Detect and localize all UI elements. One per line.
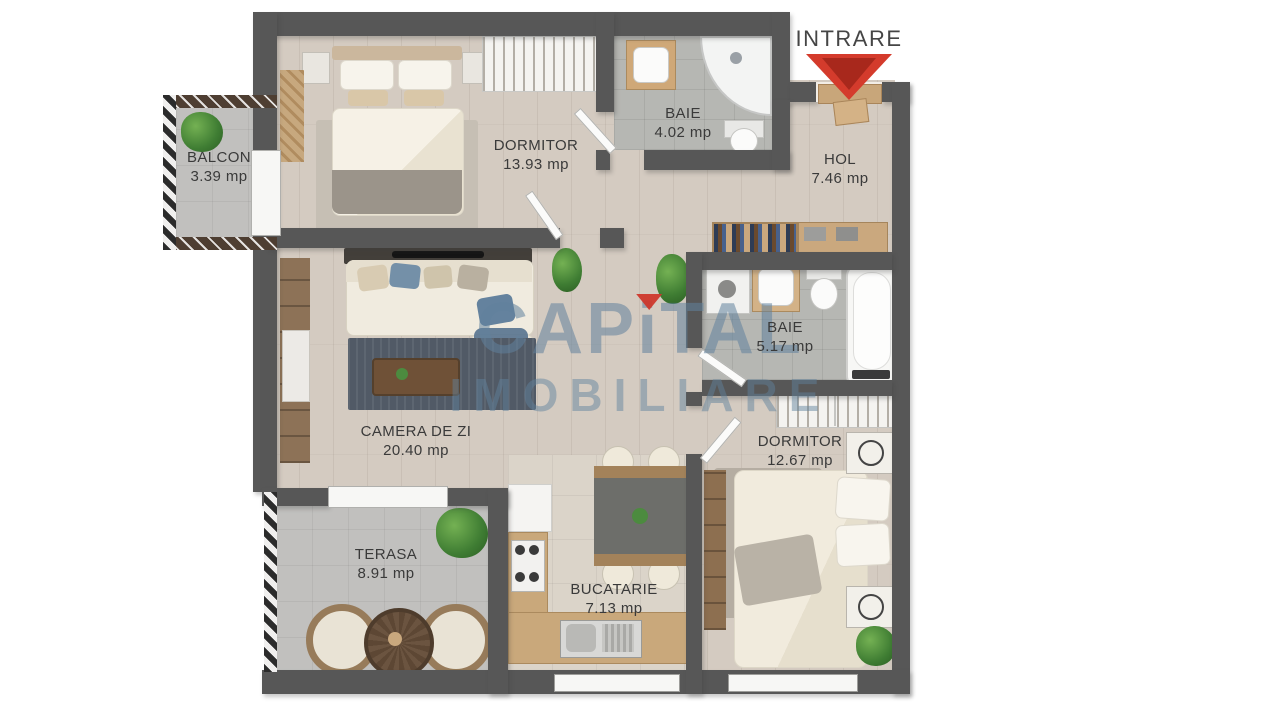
wardrobe <box>482 36 598 92</box>
wall-top <box>268 12 784 36</box>
bed-pillow <box>835 476 892 522</box>
room-name: DORMITOR <box>494 136 579 155</box>
stove-burner <box>515 572 525 582</box>
bed-cushion <box>348 90 388 106</box>
bed-pillow <box>340 60 394 90</box>
coffee-table <box>372 358 460 396</box>
dining-table-trim <box>594 466 688 478</box>
bedroom2-window <box>728 674 858 692</box>
wall-hol-bath2 <box>686 252 892 270</box>
tv <box>392 251 484 258</box>
bed-headboard <box>332 46 462 60</box>
dining-table-trim <box>594 554 688 566</box>
nightstand <box>302 52 330 84</box>
entrance-arrow-shade <box>822 58 876 90</box>
dresser-cabinet <box>704 470 726 630</box>
stove-burner <box>529 572 539 582</box>
bath-mat <box>852 370 890 379</box>
wall-kitchen-bedroom2 <box>686 454 702 694</box>
plant <box>856 626 896 666</box>
toilet-bowl <box>810 278 838 310</box>
room-label-terasa: TERASA 8.91 mp <box>355 545 417 583</box>
wall-bedroom1-bath1 <box>596 12 614 112</box>
bed-pillow <box>835 523 891 568</box>
room-label-hol: HOL 7.46 mp <box>812 150 869 188</box>
watermark-accent-letter: i <box>637 288 660 370</box>
plant <box>436 508 488 558</box>
room-area: 7.46 mp <box>812 169 869 188</box>
wall-terrace-kitchen <box>488 488 508 694</box>
kitchen-window <box>554 674 680 692</box>
room-area: 3.39 mp <box>187 167 251 186</box>
room-area: 5.17 mp <box>757 337 814 356</box>
entrance-label: INTRARE <box>795 26 902 52</box>
stove-burner <box>515 545 525 555</box>
room-area: 7.13 mp <box>570 599 657 618</box>
shower-drain <box>730 52 742 64</box>
room-area: 4.02 mp <box>655 123 712 142</box>
compass-decor <box>858 594 884 620</box>
sofa-pillow <box>423 265 453 289</box>
room-label-dormitor2: DORMITOR 12.67 mp <box>758 432 843 470</box>
outdoor-table-center <box>388 632 402 646</box>
sofa-pillow <box>389 262 421 289</box>
bed-cushion <box>404 90 444 106</box>
watermark-brand-line2: IMOBILIARE <box>450 368 831 422</box>
ladder-rack <box>280 70 304 162</box>
entrance-door-leaf <box>833 98 870 126</box>
stove-burner <box>529 545 539 555</box>
room-name: BUCATARIE <box>570 580 657 599</box>
wall-bath1-bottom <box>644 150 790 170</box>
wall-bedroom1-living-post <box>600 228 624 248</box>
sink-basin <box>566 624 596 652</box>
sofa-pillow <box>356 264 389 292</box>
room-label-dormitor1: DORMITOR 13.93 mp <box>494 136 579 174</box>
sink-basin <box>633 47 669 83</box>
plant <box>552 248 582 292</box>
terrace-sliding-door <box>328 486 448 508</box>
balcony-railing-top <box>163 95 277 108</box>
table-decor <box>396 368 408 380</box>
room-label-balcon: BALCON 3.39 mp <box>187 148 251 186</box>
room-name: TERASA <box>355 545 417 564</box>
wall-hol-left <box>772 100 790 170</box>
wall-bedroom1-living <box>268 228 560 248</box>
room-name: BAIE <box>757 318 814 337</box>
wall-bath1-corner <box>596 150 610 170</box>
sink-drainer <box>602 624 634 652</box>
room-name: HOL <box>812 150 869 169</box>
terrace-railing-left <box>264 492 277 672</box>
room-name: BAIE <box>655 104 712 123</box>
bed-pillow <box>398 60 452 90</box>
room-name: DORMITOR <box>758 432 843 451</box>
compass-decor <box>858 440 884 466</box>
room-area: 12.67 mp <box>758 451 843 470</box>
room-label-bucatarie: BUCATARIE 7.13 mp <box>570 580 657 618</box>
watermark-part1: CAP <box>476 288 637 370</box>
room-area: 20.40 mp <box>361 441 472 460</box>
storage-box <box>804 227 826 241</box>
room-label-baie2: BAIE 5.17 mp <box>757 318 814 356</box>
storage-box <box>836 227 858 241</box>
wall-left <box>253 12 277 492</box>
media-cabinet <box>282 330 310 402</box>
balcony-railing-left <box>163 95 176 250</box>
table-centerpiece <box>632 508 648 524</box>
wall-step-vertical <box>772 12 790 104</box>
watermark-brand: CAPiTAL <box>476 288 804 370</box>
room-name: BALCON <box>187 148 251 167</box>
wall-right <box>892 82 910 694</box>
balcony-sliding-door <box>251 150 281 236</box>
bathtub-basin <box>853 272 891 370</box>
room-label-camera-de-zi: CAMERA DE ZI 20.40 mp <box>361 422 472 460</box>
room-area: 8.91 mp <box>355 564 417 583</box>
fridge <box>508 484 552 532</box>
room-name: CAMERA DE ZI <box>361 422 472 441</box>
plant <box>181 112 223 152</box>
bed-blanket <box>332 170 462 214</box>
balcony-railing-bottom <box>163 237 277 250</box>
room-label-baie1: BAIE 4.02 mp <box>655 104 712 142</box>
room-area: 13.93 mp <box>494 155 579 174</box>
